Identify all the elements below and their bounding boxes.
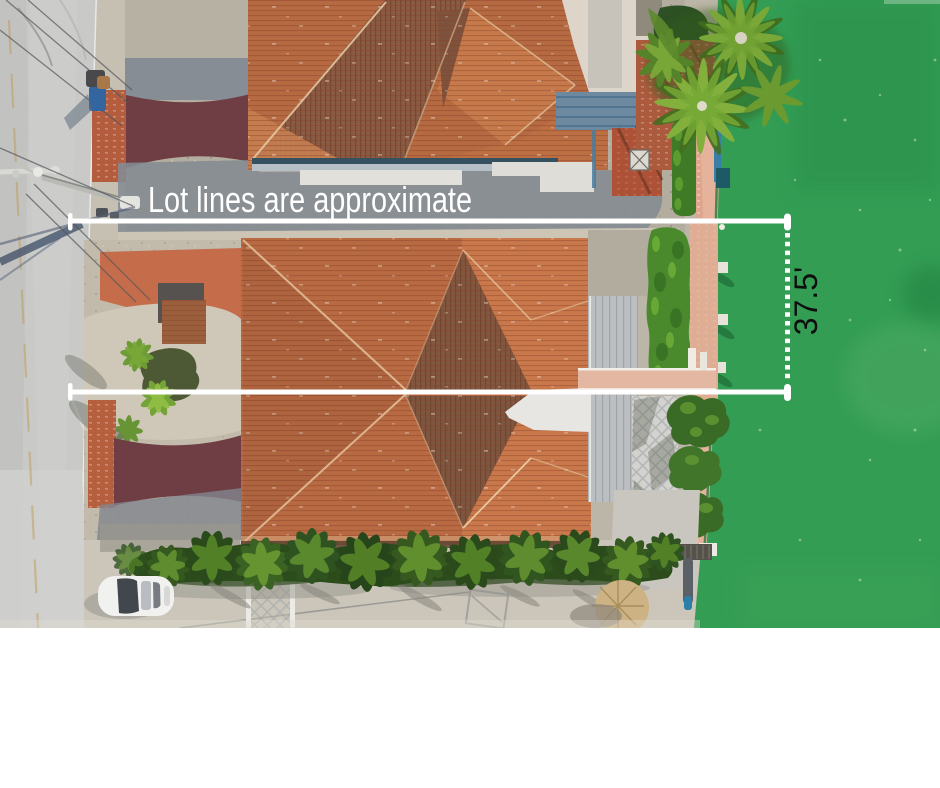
svg-text:37.5': 37.5' — [788, 267, 824, 335]
svg-text:Lot lines are approximate: Lot lines are approximate — [148, 179, 472, 220]
